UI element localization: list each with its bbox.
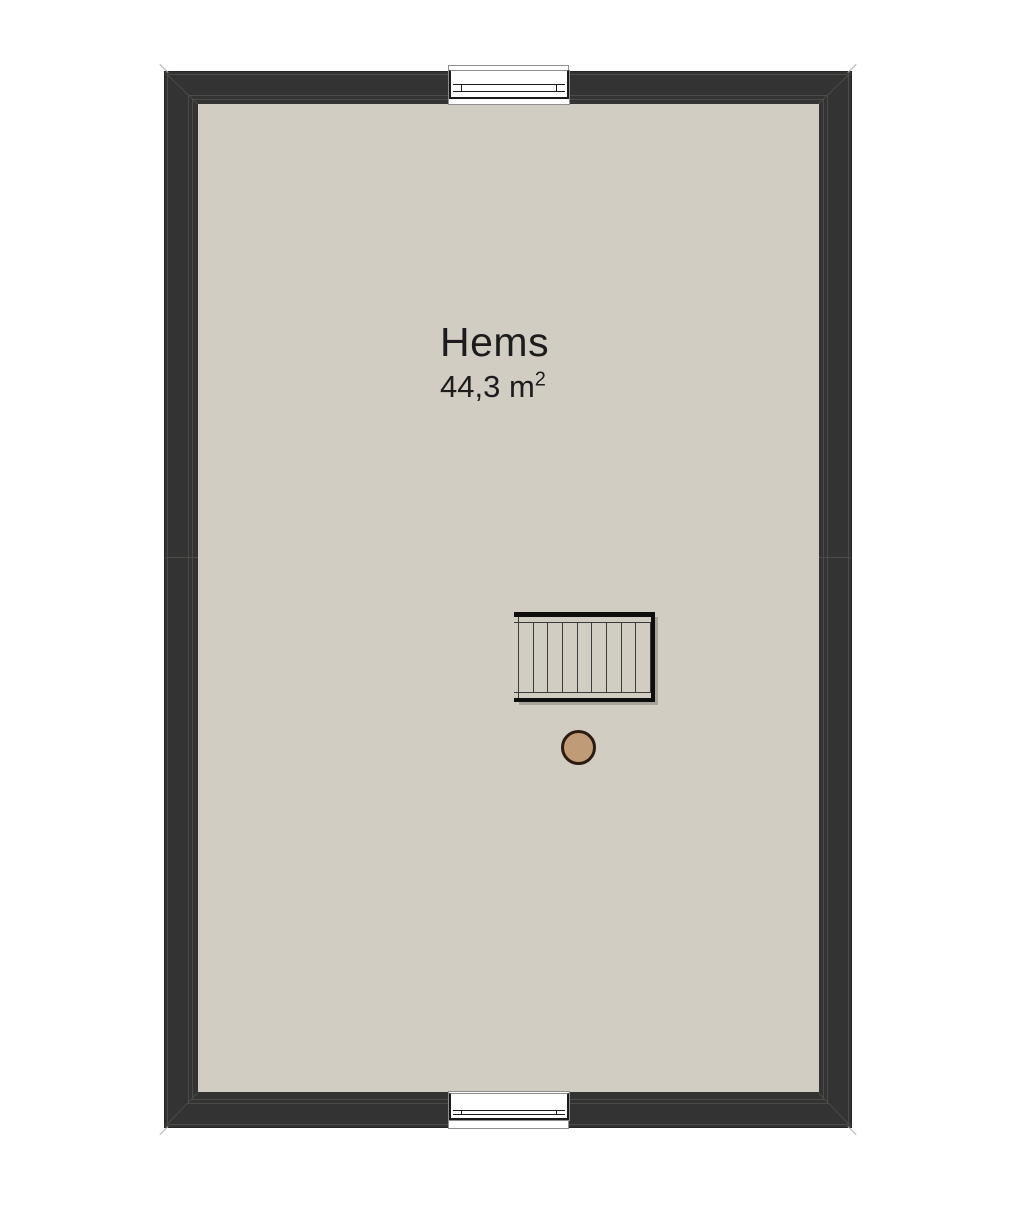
window-frame-post-right	[556, 1111, 557, 1114]
window-frame-post-left	[461, 85, 462, 91]
window-frame-post-right	[556, 85, 557, 91]
stair-tread-line	[621, 622, 622, 693]
window-frame	[449, 1093, 569, 1120]
room-name: Hems	[440, 320, 549, 364]
stair-open-edge	[518, 617, 519, 698]
room-label: Hems 44,3 m2	[440, 320, 549, 405]
corner-tick-bottom-right	[847, 1126, 856, 1135]
room-area-value: 44,3 m	[440, 369, 535, 404]
stair-tread-line	[562, 622, 563, 693]
corner-tick-bottom-left	[159, 1126, 168, 1135]
stair-stringer-bottom	[514, 692, 651, 693]
exterior-walls	[164, 71, 852, 1128]
window-outer-sill	[448, 1120, 569, 1129]
wall-seam-right	[819, 557, 851, 558]
corner-tick-top-right	[847, 64, 856, 73]
window-glazing	[453, 84, 565, 92]
room-floor	[198, 104, 819, 1092]
room-area-exponent: 2	[535, 369, 546, 391]
wall-miter-bottom-right	[818, 1092, 851, 1127]
wall-miter-bottom-left	[165, 1092, 198, 1127]
window-frame-post-left	[461, 1111, 462, 1114]
wall-miter-top-left	[165, 72, 200, 105]
window-glazing	[453, 1110, 565, 1115]
stair-tread-line	[547, 622, 548, 693]
window-top-icon	[448, 65, 570, 105]
stair-tread-line	[606, 622, 607, 693]
round-post-icon	[561, 730, 596, 765]
stair-tread-line	[577, 622, 578, 693]
wall-seam-left	[165, 557, 198, 558]
stair-tread-line	[635, 622, 636, 693]
wall-miter-top-right	[817, 72, 852, 105]
stair-stringer-top	[514, 622, 651, 623]
stair-tread-line	[650, 622, 651, 693]
stair-tread-line	[533, 622, 534, 693]
floorplan-canvas: Hems 44,3 m2	[0, 0, 1033, 1229]
window-bottom-icon	[448, 1091, 570, 1129]
stair-tread-line	[591, 622, 592, 693]
room-area: 44,3 m2	[440, 369, 549, 405]
staircase-icon	[514, 612, 655, 702]
window-frame	[449, 70, 569, 99]
